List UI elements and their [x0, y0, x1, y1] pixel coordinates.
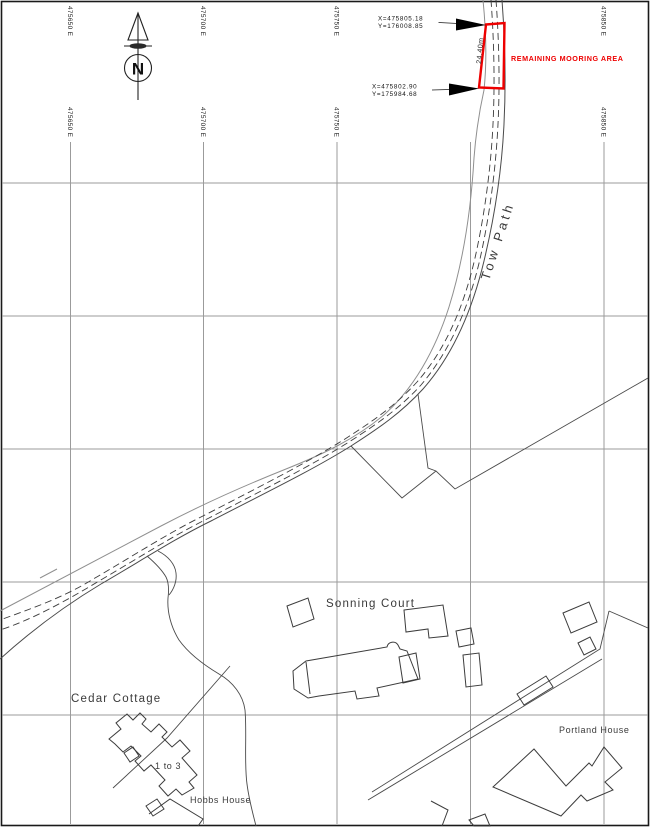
sonning-outbuilding-square [287, 598, 314, 627]
field-boundary-long-diagonal [418, 378, 648, 489]
branch-path-fork [158, 551, 176, 595]
easting-label-475700-b: 475700 E [199, 107, 206, 138]
portland-main-building [493, 747, 622, 816]
sonning-small-rect-2 [463, 653, 482, 687]
east-bank-line [0, 0, 505, 659]
cedar-cottage-label: Cedar Cottage [71, 693, 161, 705]
mooring-area-label: REMAINING MOORING AREA [511, 54, 623, 63]
north-letter: N [132, 60, 144, 79]
one-to-three-label: 1 to 3 [155, 761, 181, 771]
callout-arrow-bottom [449, 84, 479, 96]
bank-detail-segment [40, 569, 57, 578]
easting-labels: 475650 E 475650 E 475700 E 475700 E 4757… [66, 6, 607, 138]
place-labels: Tow Path Sonning Court Cedar Cottage 1 t… [71, 200, 629, 805]
boundary-lines [113, 378, 648, 800]
coordinate-grid [2, 142, 648, 824]
field-boundary-v [351, 446, 436, 498]
branch-path [147, 556, 256, 826]
north-arrow-lens [130, 43, 147, 49]
bottom-partial-building-1 [469, 814, 490, 826]
cedar-cottage-cluster [109, 713, 197, 796]
path-centerline-a [0, 0, 494, 620]
driveway-line-1 [372, 611, 609, 792]
hobbs-outbuilding [146, 799, 164, 816]
mooring-length-label: 24.40m [476, 37, 485, 64]
sonning-main-building [293, 642, 418, 699]
callout-arrow-top [456, 19, 486, 31]
easting-label-475650-a: 475650 E [66, 6, 73, 37]
coord-top-x: X=475805.18 [378, 16, 423, 23]
easting-label-475650-b: 475650 E [66, 107, 73, 138]
easting-label-475700-a: 475700 E [199, 6, 206, 37]
coord-top-y: Y=176008.85 [378, 23, 423, 30]
easting-label-475750-a: 475750 E [333, 6, 340, 37]
sonning-main-building-divider [306, 662, 310, 694]
boundary-to-right-edge [609, 611, 648, 628]
coord-bottom-y: Y=175984.68 [372, 91, 417, 98]
portland-ne-outbuilding [563, 602, 597, 633]
site-plan-map: 475650 E 475650 E 475700 E 475700 E 4757… [0, 0, 650, 828]
easting-label-475850-b: 475850 E [600, 107, 607, 138]
hobbs-house-label: Hobbs House [190, 795, 251, 805]
north-arrow: N [124, 13, 152, 100]
buildings [109, 598, 622, 826]
path-centerline-b [0, 0, 499, 630]
portland-garage [517, 676, 553, 705]
sonning-small-rect-1 [456, 628, 474, 647]
coordinate-callout-bottom: X=475802.90 Y=175984.68 [372, 84, 479, 99]
sonning-court-label: Sonning Court [326, 598, 415, 610]
coordinate-callout-top: X=475805.18 Y=176008.85 [378, 16, 486, 31]
easting-label-475750-b: 475750 E [333, 107, 340, 138]
site-plan-sheet: 475650 E 475650 E 475700 E 475700 E 4757… [0, 0, 650, 828]
portland-drive-square [578, 637, 596, 655]
easting-label-475850-a: 475850 E [600, 6, 607, 37]
coord-bottom-x: X=475802.90 [372, 84, 417, 91]
bottom-partial-building-2 [431, 801, 448, 826]
portland-house-label: Portland House [559, 725, 629, 735]
